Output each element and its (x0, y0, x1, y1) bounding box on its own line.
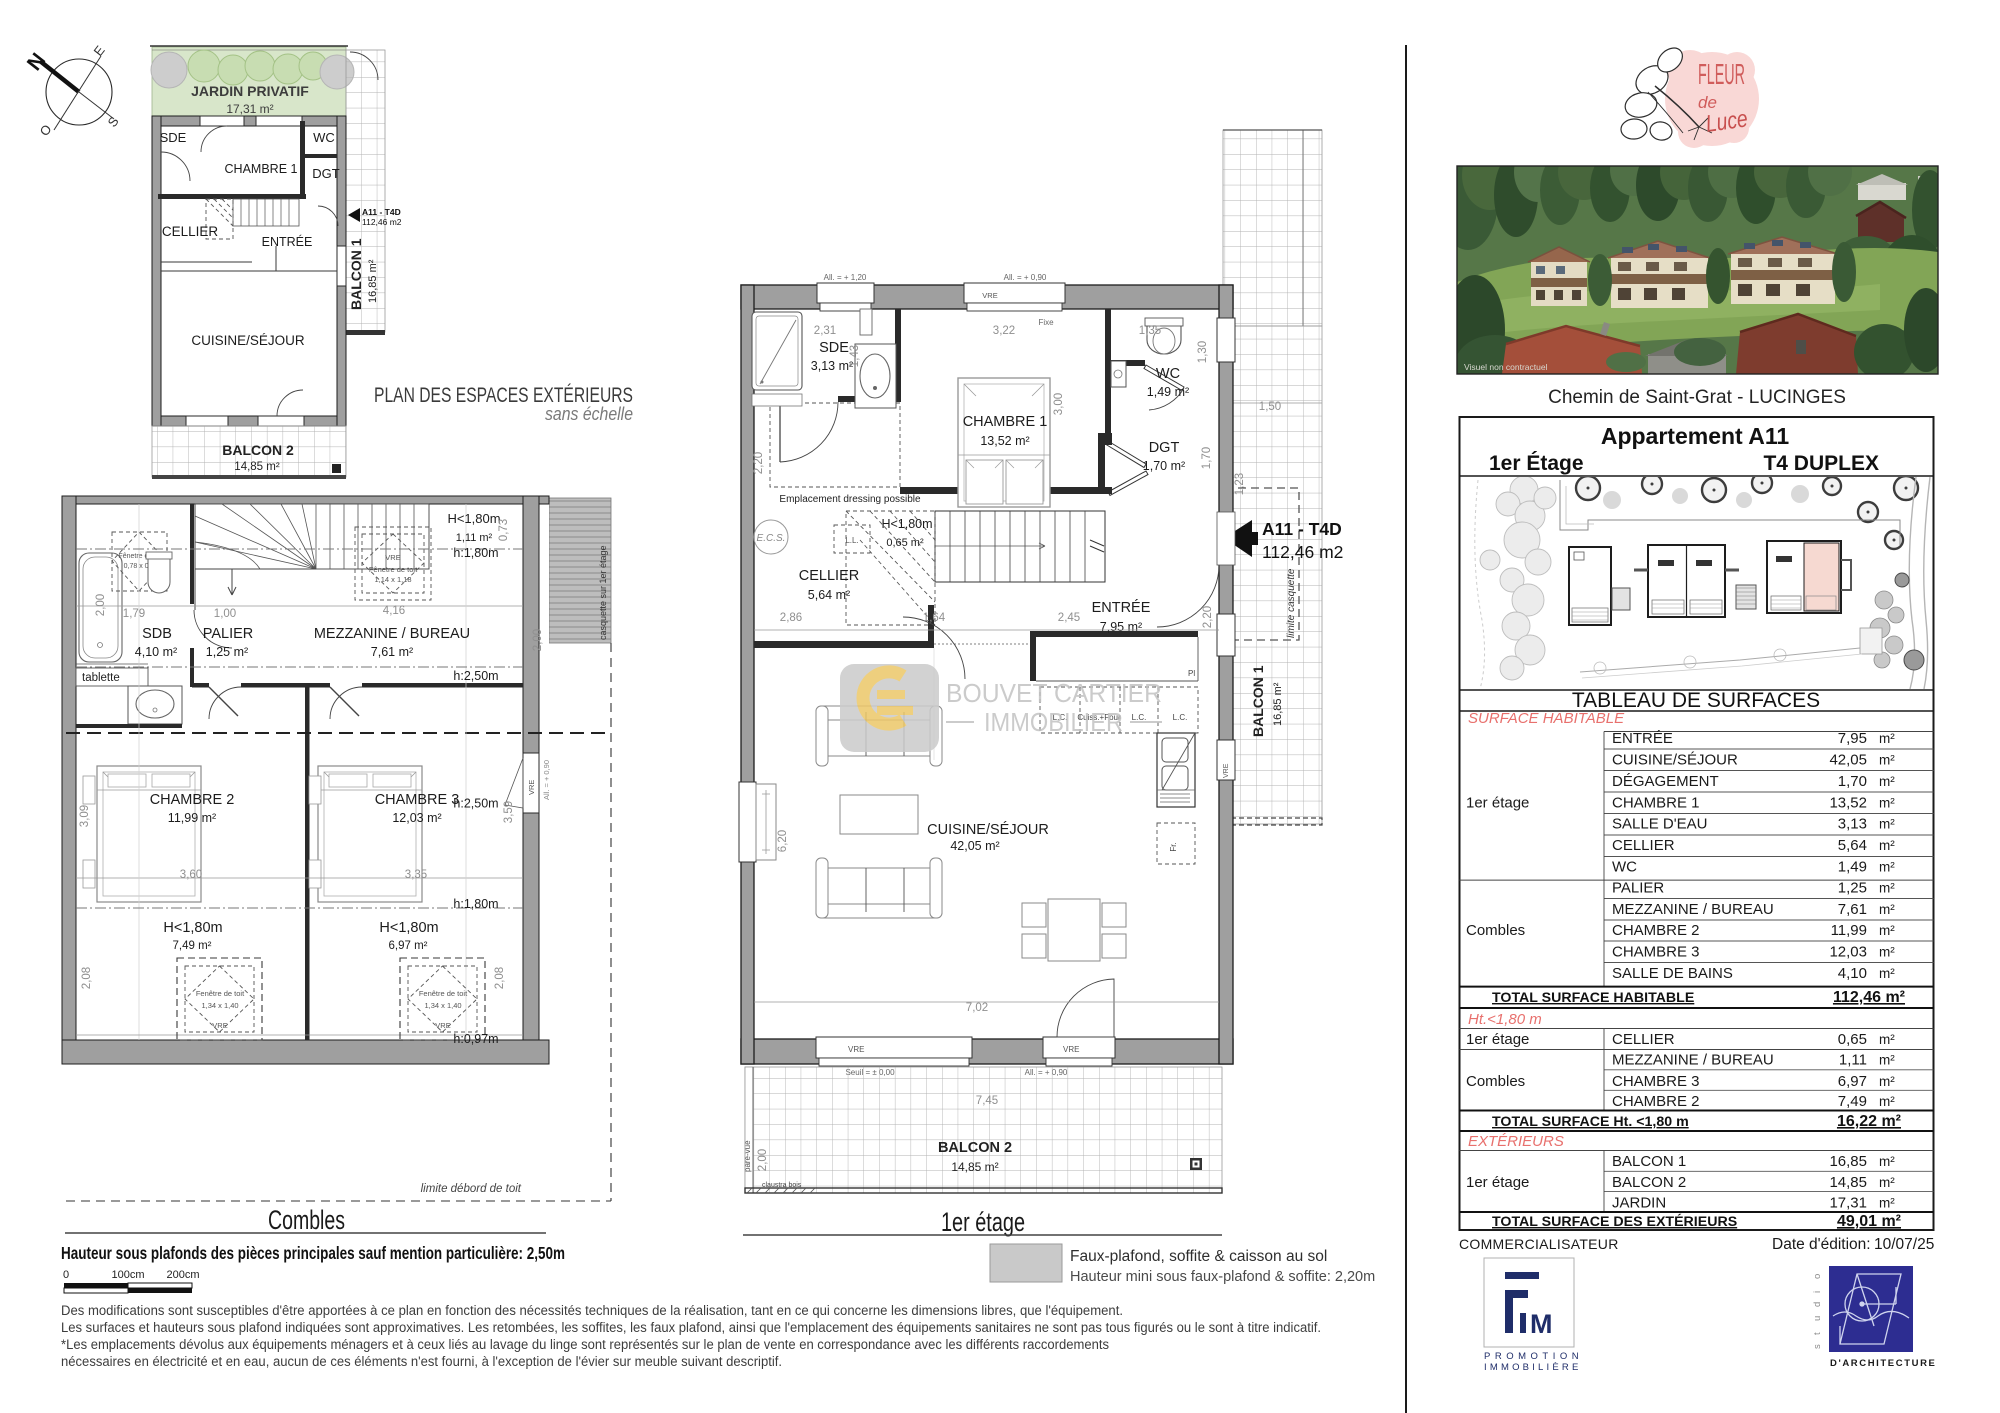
svg-text:7,61 m²: 7,61 m² (371, 645, 413, 659)
svg-text:Hauteur sous plafonds des pièc: Hauteur sous plafonds des pièces princip… (61, 1243, 565, 1263)
svg-text:12,03: 12,03 (1829, 944, 1867, 961)
svg-text:sans échelle: sans échelle (545, 403, 633, 424)
svg-text:0,73: 0,73 (498, 519, 510, 541)
svg-text:Emplacement dressing possible: Emplacement dressing possible (779, 494, 921, 505)
svg-text:WC: WC (313, 130, 335, 145)
svg-text:1er étage: 1er étage (941, 1207, 1025, 1237)
svg-text:112,46 m²: 112,46 m² (1833, 989, 1905, 1006)
svg-text:All. = + 0,90: All. = + 0,90 (542, 760, 551, 800)
svg-text:2,31: 2,31 (814, 325, 836, 337)
svg-text:ENTRÉE: ENTRÉE (1612, 730, 1673, 747)
svg-text:1,11: 1,11 (1839, 1052, 1867, 1069)
svg-text:1,00: 1,00 (214, 608, 236, 620)
svg-text:6,97 m²: 6,97 m² (389, 940, 428, 952)
svg-text:T4 DUPLEX: T4 DUPLEX (1763, 452, 1879, 475)
svg-text:FLEUR: FLEUR (1698, 59, 1745, 91)
svg-text:m²: m² (1879, 796, 1895, 811)
svg-text:Appartement A11: Appartement A11 (1601, 423, 1790, 449)
svg-text:17,31 m²: 17,31 m² (226, 102, 273, 116)
svg-text:42,05: 42,05 (1829, 752, 1867, 769)
svg-text:CHAMBRE 1: CHAMBRE 1 (1612, 795, 1700, 812)
svg-text:MEZZANINE / BUREAU: MEZZANINE / BUREAU (1612, 1052, 1774, 1069)
svg-text:Fr.: Fr. (1169, 842, 1178, 851)
svg-text:0,65 m²: 0,65 m² (886, 537, 924, 549)
svg-text:limite casquette: limite casquette (1286, 568, 1297, 638)
svg-text:m²: m² (1879, 902, 1895, 917)
svg-text:2,20: 2,20 (753, 452, 765, 474)
svg-text:h:1,80m: h:1,80m (453, 897, 498, 911)
svg-text:11,99 m²: 11,99 m² (168, 811, 216, 825)
svg-text:COMMERCIALISATEUR: COMMERCIALISATEUR (1459, 1236, 1619, 1252)
svg-text:DGT: DGT (1149, 440, 1180, 456)
svg-text:MEZZANINE / BUREAU: MEZZANINE / BUREAU (314, 626, 470, 642)
svg-text:u: u (1812, 1316, 1823, 1321)
svg-text:16,85 m²: 16,85 m² (1272, 682, 1284, 726)
svg-text:PALIER: PALIER (203, 626, 254, 642)
svg-text:5,64 m²: 5,64 m² (808, 588, 850, 602)
svg-text:VRE: VRE (385, 553, 400, 562)
svg-text:Combles: Combles (268, 1205, 345, 1235)
svg-text:SURFACE HABITABLE: SURFACE HABITABLE (1468, 710, 1625, 727)
svg-text:SDE: SDE (819, 340, 849, 356)
svg-text:1er Étage: 1er Étage (1489, 452, 1584, 475)
svg-text:casquette sur 1er étage: casquette sur 1er étage (598, 545, 608, 640)
svg-text:H<1,80m: H<1,80m (163, 920, 222, 936)
svg-text:4,10: 4,10 (1838, 965, 1867, 982)
svg-text:m²: m² (1879, 1032, 1895, 1047)
svg-text:m²: m² (1879, 817, 1895, 832)
svg-text:1,79: 1,79 (123, 608, 145, 620)
svg-text:3,22: 3,22 (993, 325, 1015, 337)
svg-text:Fenêtre de toit: Fenêtre de toit (419, 989, 468, 998)
svg-text:Chemin de Saint-Grat - LUCINGE: Chemin de Saint-Grat - LUCINGES (1548, 387, 1846, 408)
svg-text:7,95: 7,95 (1838, 730, 1867, 747)
svg-text:1,43: 1,43 (849, 345, 861, 367)
svg-text:7,95 m²: 7,95 m² (1100, 620, 1142, 634)
svg-text:14,85: 14,85 (1829, 1174, 1867, 1191)
svg-text:13,52 m²: 13,52 m² (980, 434, 1029, 448)
svg-text:CHAMBRE 2: CHAMBRE 2 (1612, 1093, 1700, 1110)
svg-text:16,85 m²: 16,85 m² (367, 259, 379, 303)
svg-text:SDE: SDE (160, 130, 187, 145)
svg-text:1,25: 1,25 (1838, 880, 1867, 897)
svg-text:VRE: VRE (982, 291, 997, 300)
svg-text:SALLE D'EAU: SALLE D'EAU (1612, 816, 1707, 833)
svg-text:5,64: 5,64 (1838, 837, 1867, 854)
svg-text:1,70: 1,70 (1201, 447, 1213, 469)
svg-text:10/07/25: 10/07/25 (1874, 1236, 1934, 1253)
svg-text:112,46 m2: 112,46 m2 (362, 217, 402, 227)
svg-text:3,59: 3,59 (503, 801, 515, 823)
svg-text:H<1,80m: H<1,80m (447, 511, 500, 526)
svg-text:1,64: 1,64 (923, 612, 946, 624)
svg-text:L.C.: L.C. (1132, 713, 1147, 722)
svg-text:3,35: 3,35 (405, 869, 427, 881)
svg-text:12,03 m²: 12,03 m² (392, 811, 441, 825)
svg-text:0: 0 (63, 1269, 69, 1281)
svg-text:CHAMBRE 3: CHAMBRE 3 (1612, 1073, 1700, 1090)
svg-text:L.L.: L.L. (845, 536, 858, 545)
svg-text:o: o (1812, 1274, 1823, 1279)
svg-text:E: E (91, 43, 108, 59)
svg-text:All. = + 1,20: All. = + 1,20 (824, 273, 867, 282)
svg-text:BALCON 1: BALCON 1 (1250, 665, 1266, 737)
svg-text:4,10 m²: 4,10 m² (135, 645, 177, 659)
svg-text:VRE: VRE (212, 1021, 227, 1030)
svg-text:JARDIN: JARDIN (1612, 1195, 1666, 1212)
svg-text:Hauteur mini sous faux-plafond: Hauteur mini sous faux-plafond & soffite… (1070, 1269, 1375, 1285)
svg-text:6,20: 6,20 (777, 830, 789, 852)
svg-text:m²: m² (1879, 881, 1895, 896)
svg-text:O: O (37, 122, 55, 139)
svg-text:BOUVET CARTIER: BOUVET CARTIER (946, 678, 1162, 708)
svg-text:s: s (1812, 1344, 1823, 1349)
svg-text:BALCON 2: BALCON 2 (222, 442, 294, 458)
svg-text:H<1,80m: H<1,80m (379, 920, 438, 936)
svg-text:CHAMBRE 2: CHAMBRE 2 (1612, 922, 1700, 939)
svg-text:E.C.S.: E.C.S. (757, 533, 786, 544)
svg-text:BALCON 1: BALCON 1 (1612, 1153, 1686, 1170)
svg-text:1er étage: 1er étage (1466, 795, 1529, 812)
svg-text:Des modifications sont suscept: Des modifications sont susceptibles d'êt… (61, 1303, 1123, 1318)
svg-text:m²: m² (1879, 1074, 1895, 1089)
svg-text:2,45: 2,45 (1058, 612, 1080, 624)
svg-text:2,00: 2,00 (532, 629, 544, 651)
svg-text:1,34 x 1,40: 1,34 x 1,40 (201, 1001, 238, 1010)
svg-text:m²: m² (1879, 1053, 1895, 1068)
svg-text:3,00: 3,00 (1053, 393, 1065, 415)
svg-text:1,70 m²: 1,70 m² (1143, 459, 1185, 473)
svg-text:ENTRÉE: ENTRÉE (262, 234, 313, 249)
svg-text:3,13: 3,13 (1838, 816, 1867, 833)
svg-text:VRE: VRE (1063, 1045, 1079, 1054)
svg-text:Combles: Combles (1466, 1073, 1525, 1090)
svg-text:4,16: 4,16 (383, 605, 405, 617)
svg-text:11,99: 11,99 (1831, 922, 1867, 939)
svg-text:1,35: 1,35 (1139, 325, 1161, 337)
svg-text:CELLIER: CELLIER (799, 568, 859, 584)
svg-text:h:2,50m: h:2,50m (453, 669, 498, 683)
svg-text:t: t (1812, 1332, 1823, 1335)
svg-text:VRE: VRE (848, 1045, 864, 1054)
svg-text:m²: m² (1879, 753, 1895, 768)
svg-text:7,45: 7,45 (976, 1095, 998, 1107)
svg-text:CELLIER: CELLIER (162, 224, 219, 239)
svg-text:2,00: 2,00 (757, 1149, 769, 1171)
svg-text:m²: m² (1879, 838, 1895, 853)
svg-text:m²: m² (1879, 860, 1895, 875)
svg-text:CUISINE/SÉJOUR: CUISINE/SÉJOUR (1612, 752, 1738, 769)
svg-text:16,85: 16,85 (1829, 1153, 1867, 1170)
svg-text:Les surfaces et hauteurs sous: Les surfaces et hauteurs sous plafond in… (61, 1320, 1321, 1335)
svg-text:6,97: 6,97 (1838, 1073, 1867, 1090)
svg-text:m²: m² (1879, 1094, 1895, 1109)
svg-text:SDB: SDB (142, 626, 172, 642)
svg-text:Combles: Combles (1466, 922, 1525, 939)
svg-text:49,01 m²: 49,01 m² (1837, 1213, 1901, 1230)
svg-text:N: N (23, 49, 50, 75)
svg-text:m²: m² (1879, 945, 1895, 960)
svg-text:m²: m² (1879, 1196, 1895, 1211)
svg-text:BALCON 2: BALCON 2 (938, 1140, 1012, 1156)
svg-text:TOTAL SURFACE HABITABLE: TOTAL SURFACE HABITABLE (1492, 990, 1694, 1006)
svg-text:2,08: 2,08 (494, 967, 506, 989)
svg-text:2,20: 2,20 (1202, 606, 1214, 628)
svg-text:CHAMBRE 3: CHAMBRE 3 (375, 792, 460, 808)
svg-text:CHAMBRE 3: CHAMBRE 3 (1612, 944, 1700, 961)
svg-text:limite débord de toit: limite débord de toit (421, 1183, 522, 1195)
svg-text:Pl: Pl (1188, 669, 1195, 678)
svg-text:L.C.: L.C. (1173, 713, 1188, 722)
svg-text:7,49: 7,49 (1838, 1093, 1867, 1110)
svg-text:112,46 m2: 112,46 m2 (1262, 542, 1343, 562)
svg-text:nécessaires en électricité et: nécessaires en électricité et en eau, au… (61, 1354, 782, 1369)
svg-text:h:1,80m: h:1,80m (453, 546, 498, 560)
svg-text:claustra bois: claustra bois (762, 1182, 802, 1189)
svg-text:D'ARCHITECTURE: D'ARCHITECTURE (1830, 1358, 1936, 1369)
svg-text:A11 - T4D: A11 - T4D (1262, 519, 1342, 539)
svg-text:BALCON 1: BALCON 1 (348, 238, 364, 310)
svg-text:IMMOBILIER: IMMOBILIER (984, 707, 1123, 737)
svg-text:CUISINE/SÉJOUR: CUISINE/SÉJOUR (927, 821, 1049, 838)
svg-text:7,02: 7,02 (966, 1002, 988, 1014)
svg-text:2,86: 2,86 (780, 612, 802, 624)
svg-text:m²: m² (1879, 966, 1895, 981)
svg-text:BALCON 2: BALCON 2 (1612, 1174, 1686, 1191)
svg-text:Fenêtre de toit: Fenêtre de toit (196, 989, 245, 998)
svg-text:DÉGAGEMENT: DÉGAGEMENT (1612, 773, 1719, 790)
svg-text:CHAMBRE 2: CHAMBRE 2 (150, 792, 235, 808)
svg-text:S: S (105, 114, 122, 130)
svg-text:TOTAL SURFACE DES EXTÉRIEURS: TOTAL SURFACE DES EXTÉRIEURS (1492, 1213, 1737, 1230)
svg-text:7,49 m²: 7,49 m² (173, 940, 212, 952)
svg-text:1,23: 1,23 (1234, 473, 1246, 495)
svg-text:0,65: 0,65 (1838, 1031, 1867, 1048)
svg-text:1,70: 1,70 (1838, 773, 1867, 790)
svg-text:2,00: 2,00 (95, 594, 107, 616)
svg-text:TOTAL SURFACE Ht. <1,80 m: TOTAL SURFACE Ht. <1,80 m (1492, 1114, 1689, 1130)
svg-text:1er étage: 1er étage (1466, 1031, 1529, 1048)
svg-text:m²: m² (1879, 923, 1895, 938)
svg-text:MEZZANINE / BUREAU: MEZZANINE / BUREAU (1612, 901, 1774, 918)
svg-text:m²: m² (1879, 1175, 1895, 1190)
svg-text:7,61: 7,61 (1838, 901, 1867, 918)
svg-text:Faux-plafond, soffite & caisso: Faux-plafond, soffite & caisson au sol (1070, 1248, 1327, 1265)
svg-text:m²: m² (1879, 774, 1895, 789)
svg-text:H<1,80m: H<1,80m (881, 517, 932, 531)
svg-text:CELLIER: CELLIER (1612, 1031, 1675, 1048)
svg-text:A11 - T4D: A11 - T4D (362, 207, 401, 217)
svg-text:100cm: 100cm (111, 1269, 144, 1281)
svg-text:16,22 m²: 16,22 m² (1837, 1113, 1901, 1130)
svg-text:*Les emplacements dévolus aux: *Les emplacements dévolus aux équipement… (61, 1337, 1109, 1352)
svg-text:WC: WC (1612, 859, 1637, 876)
svg-text:h:0,97m: h:0,97m (453, 1032, 498, 1046)
svg-text:1er étage: 1er étage (1466, 1174, 1529, 1191)
svg-text:VRE: VRE (1223, 763, 1230, 778)
svg-text:14,85 m²: 14,85 m² (951, 1160, 998, 1174)
svg-text:14,85 m²: 14,85 m² (234, 461, 280, 473)
svg-text:1,25 m²: 1,25 m² (206, 645, 248, 659)
svg-text:EXTÉRIEURS: EXTÉRIEURS (1468, 1133, 1564, 1150)
svg-text:CHAMBRE 1: CHAMBRE 1 (963, 414, 1048, 430)
svg-text:1,14 x 1,18: 1,14 x 1,18 (374, 575, 411, 584)
svg-text:Visuel non contractuel: Visuel non contractuel (1464, 362, 1548, 372)
svg-text:ENTRÉE: ENTRÉE (1092, 599, 1151, 616)
svg-text:3,13 m²: 3,13 m² (811, 359, 853, 373)
svg-text:Fixe: Fixe (1038, 318, 1054, 327)
svg-text:m²: m² (1879, 731, 1895, 746)
svg-text:3,60: 3,60 (180, 869, 202, 881)
svg-text:1,49 m²: 1,49 m² (1147, 385, 1189, 399)
svg-text:JARDIN PRIVATIF: JARDIN PRIVATIF (191, 83, 309, 99)
svg-text:VRE: VRE (527, 780, 536, 795)
svg-text:17,31: 17,31 (1829, 1195, 1867, 1212)
svg-text:CELLIER: CELLIER (1612, 837, 1675, 854)
svg-text:TABLEAU DE SURFACES: TABLEAU DE SURFACES (1572, 689, 1820, 712)
svg-text:Date d'édition:: Date d'édition: (1772, 1236, 1871, 1253)
svg-text:M: M (1530, 1309, 1553, 1339)
svg-text:PROMOTION: PROMOTION (1484, 1351, 1583, 1362)
svg-text:1,49: 1,49 (1838, 859, 1867, 876)
svg-text:tablette: tablette (82, 672, 120, 684)
svg-text:i: i (1812, 1291, 1823, 1293)
svg-text:CHAMBRE 1: CHAMBRE 1 (225, 162, 298, 176)
svg-text:All. = + 0,90: All. = + 0,90 (1004, 273, 1047, 282)
svg-text:m²: m² (1879, 1154, 1895, 1169)
svg-text:1,34 x 1,40: 1,34 x 1,40 (424, 1001, 461, 1010)
svg-text:pare-vue: pare-vue (743, 1140, 752, 1172)
svg-text:13,52: 13,52 (1829, 795, 1867, 812)
svg-text:h:2,50m: h:2,50m (453, 797, 498, 811)
svg-text:CUISINE/SÉJOUR: CUISINE/SÉJOUR (191, 333, 305, 348)
svg-text:SALLE DE BAINS: SALLE DE BAINS (1612, 965, 1733, 982)
svg-text:VRE: VRE (435, 1021, 450, 1030)
svg-text:42,05 m²: 42,05 m² (950, 839, 999, 853)
svg-text:Ht.<1,80 m: Ht.<1,80 m (1468, 1011, 1542, 1028)
svg-text:WC: WC (1156, 366, 1180, 382)
svg-text:DGT: DGT (312, 166, 340, 181)
svg-text:IMMOBILIÈRE: IMMOBILIÈRE (1484, 1362, 1582, 1373)
svg-text:3,09: 3,09 (79, 805, 91, 827)
svg-text:Fênetre de toit: Fênetre de toit (369, 565, 418, 574)
svg-text:2,08: 2,08 (81, 967, 93, 989)
svg-text:PALIER: PALIER (1612, 880, 1664, 897)
svg-text:d: d (1812, 1302, 1823, 1307)
svg-text:1,11 m²: 1,11 m² (456, 532, 493, 544)
svg-text:200cm: 200cm (166, 1269, 199, 1281)
svg-text:1,30: 1,30 (1197, 341, 1209, 363)
